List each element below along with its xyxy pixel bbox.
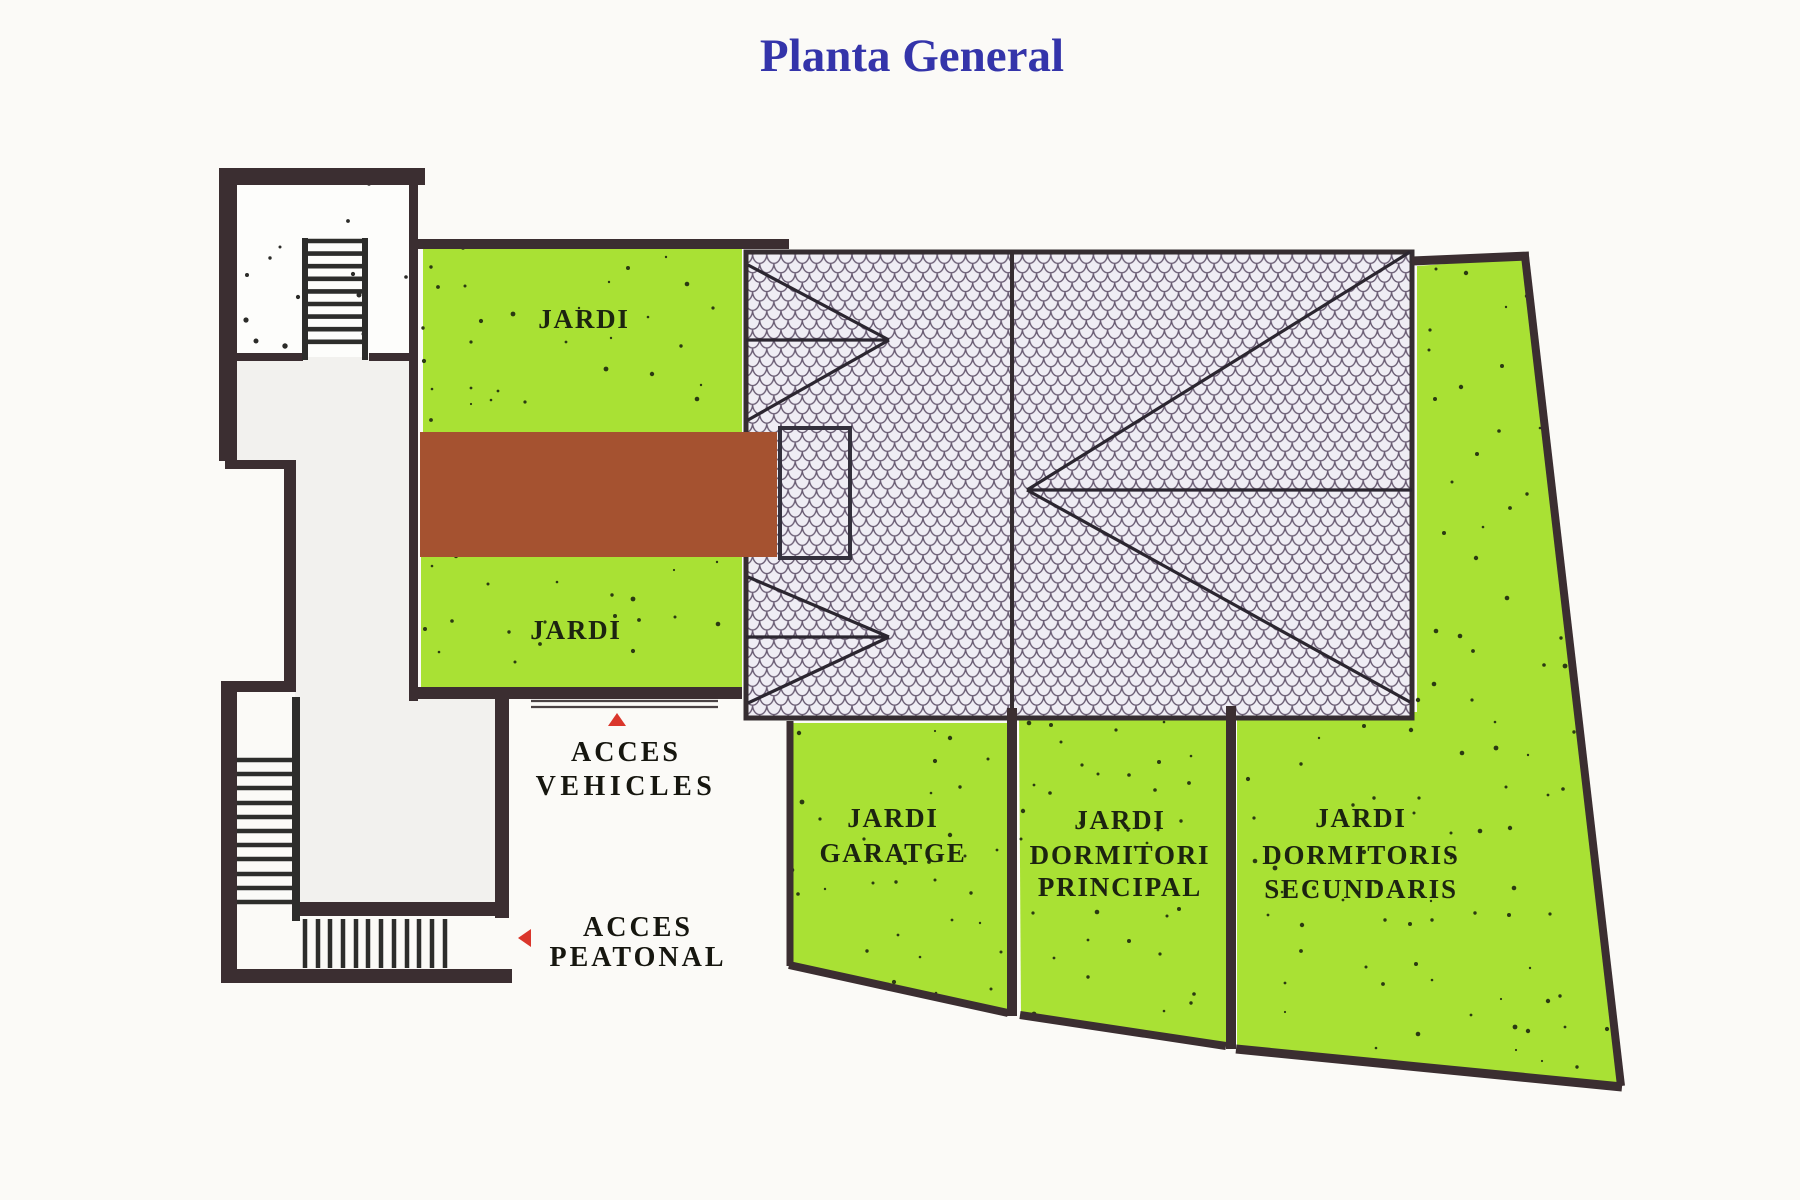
svg-text:Planta General: Planta General — [760, 30, 1064, 82]
svg-text:PEATONAL: PEATONAL — [550, 942, 727, 973]
svg-text:JARDI: JARDI — [1315, 803, 1407, 833]
svg-text:DORMITORI: DORMITORI — [1030, 840, 1211, 870]
svg-text:JARDI: JARDI — [847, 803, 939, 833]
svg-text:ACCES: ACCES — [571, 737, 681, 768]
svg-text:PRINCIPAL: PRINCIPAL — [1038, 872, 1202, 902]
svg-text:JARDI: JARDI — [538, 304, 630, 334]
svg-text:JARDI: JARDI — [530, 615, 622, 645]
svg-text:JARDI: JARDI — [1074, 805, 1166, 835]
svg-text:DORMITORIS: DORMITORIS — [1262, 840, 1460, 870]
svg-text:GARATGE: GARATGE — [819, 838, 966, 868]
svg-text:ACCES: ACCES — [583, 912, 693, 943]
svg-text:SECUNDARIS: SECUNDARIS — [1264, 874, 1458, 904]
svg-text:VEHICLES: VEHICLES — [536, 771, 717, 802]
